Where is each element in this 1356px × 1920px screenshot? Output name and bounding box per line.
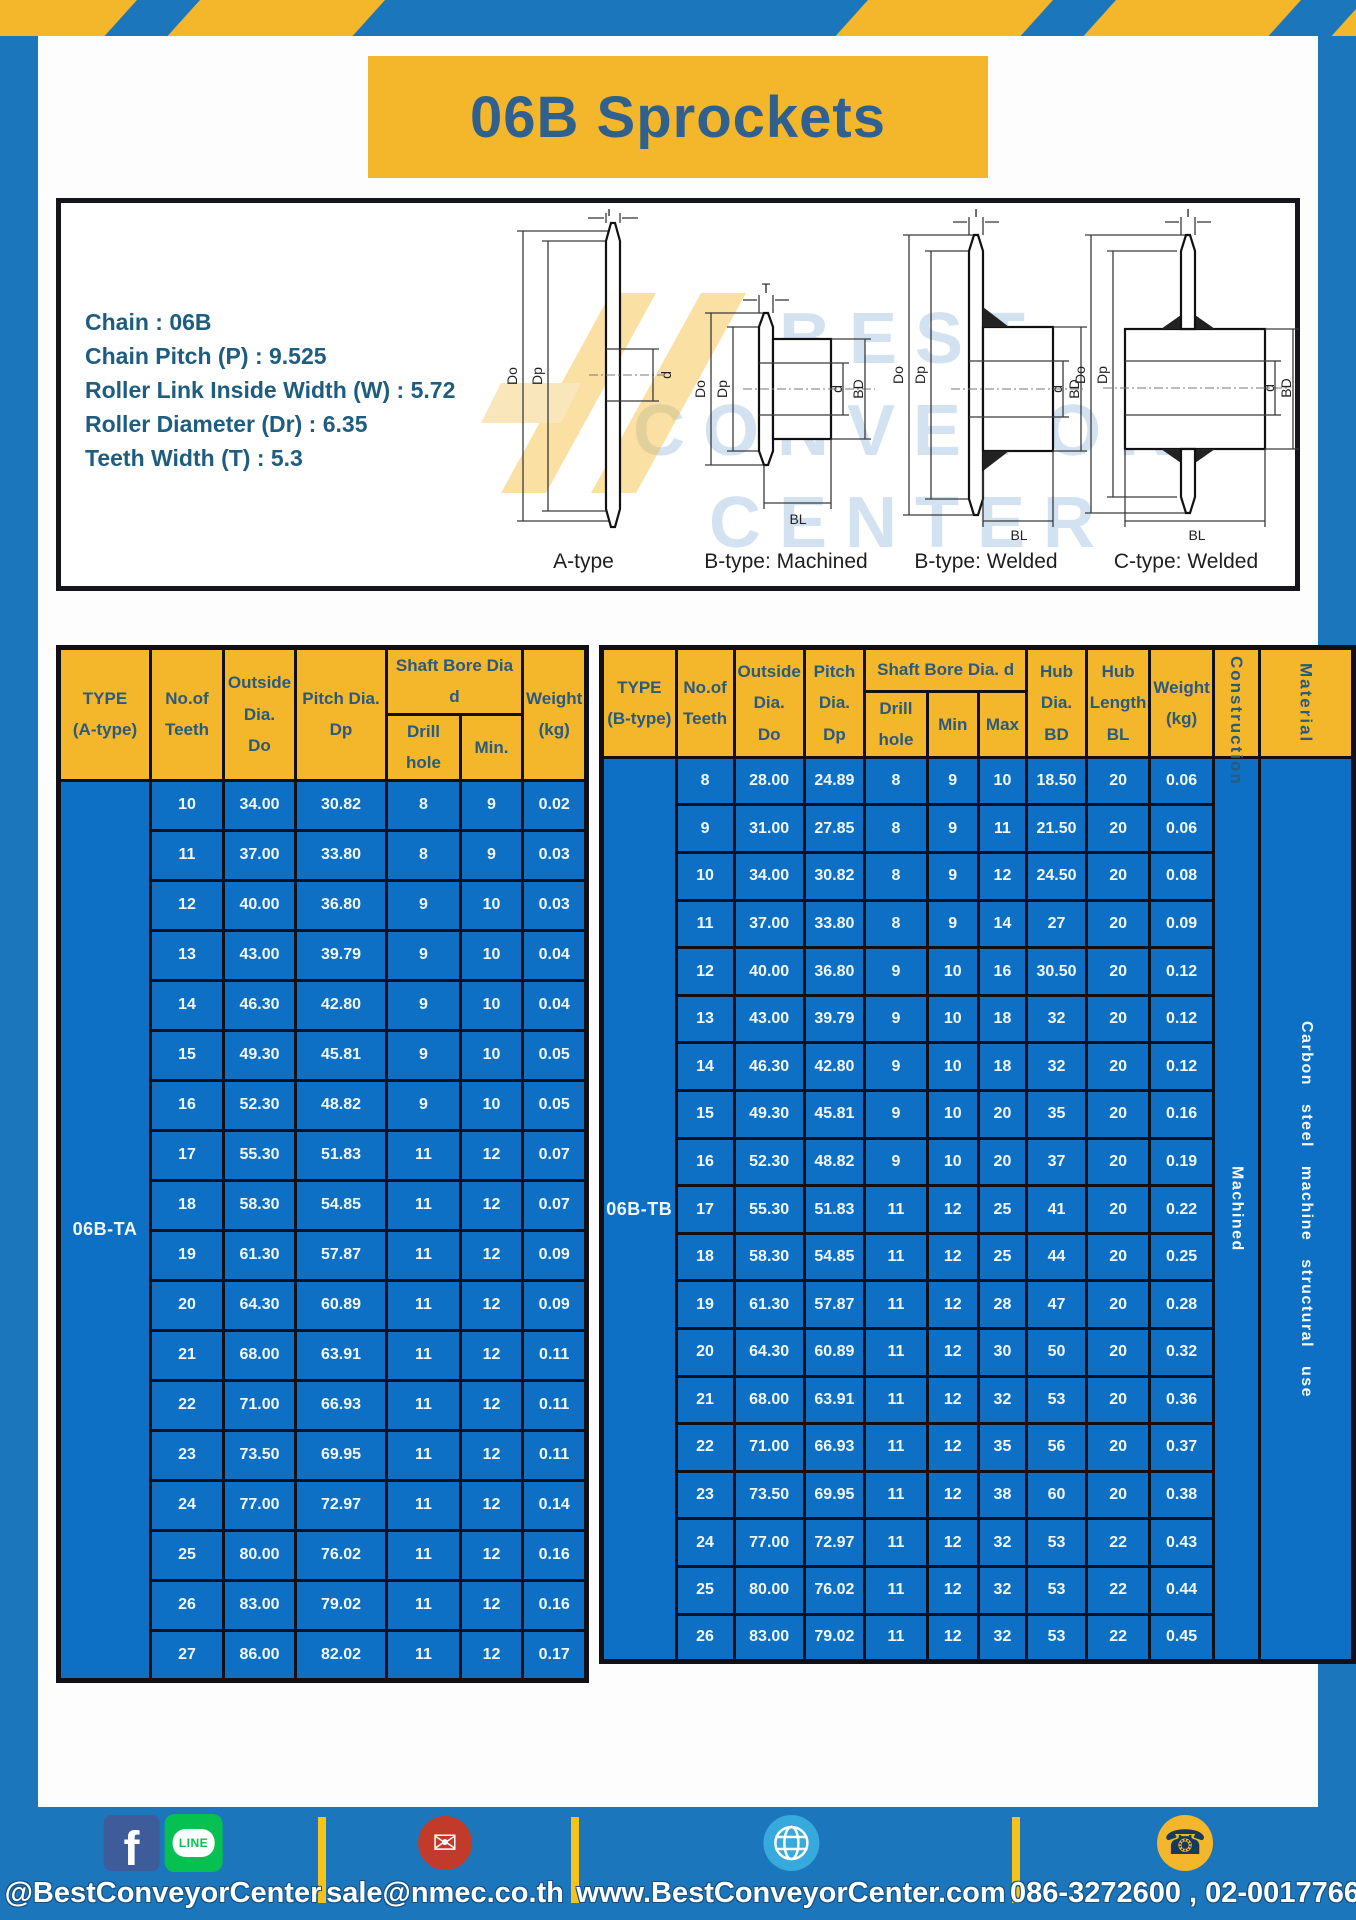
dim-label-bl: BL xyxy=(1010,527,1027,543)
table-cell: 52.30 xyxy=(734,1138,804,1186)
table-cell: 12 xyxy=(676,948,734,996)
table-cell: 20 xyxy=(1086,1281,1150,1329)
table-cell: 30.82 xyxy=(804,853,864,901)
globe-icon xyxy=(763,1815,819,1871)
dim-label-do: Do xyxy=(1073,366,1088,384)
email-icon: ✉ xyxy=(418,1816,472,1870)
table-cell: 71.00 xyxy=(734,1424,804,1472)
dim-label-bd: BD xyxy=(850,379,866,398)
table-cell: 53 xyxy=(1027,1566,1086,1614)
table-cell: 51.83 xyxy=(296,1130,387,1180)
table-cell: 9 xyxy=(461,830,523,880)
stripe-decoration xyxy=(0,0,137,36)
table-cell: 20 xyxy=(1086,1471,1150,1519)
dim-label-do: Do xyxy=(504,367,520,385)
table-cell: 57.87 xyxy=(296,1230,387,1280)
table-cell: 9 xyxy=(865,948,928,996)
table-cell: 0.06 xyxy=(1150,757,1213,805)
table-cell: 20 xyxy=(1086,1424,1150,1472)
table-cell: 11 xyxy=(865,1329,928,1377)
table-cell: 10 xyxy=(461,880,523,930)
table-cell: 0.04 xyxy=(523,930,587,980)
table-cell: 0.22 xyxy=(1150,1186,1213,1234)
table-cell: 0.12 xyxy=(1150,995,1213,1043)
table-cell: 0.25 xyxy=(1150,1233,1213,1281)
table-cell: 32 xyxy=(1027,1043,1086,1091)
dim-label-dp: Dp xyxy=(1094,366,1110,384)
table-cell: 20 xyxy=(978,1138,1027,1186)
table-cell: 8 xyxy=(865,900,928,948)
table-cell: 22 xyxy=(151,1380,224,1430)
table-cell: 30 xyxy=(978,1329,1027,1377)
table-cell: 24.50 xyxy=(1027,853,1086,901)
table-cell: 10 xyxy=(461,1080,523,1130)
table-cell: 12 xyxy=(927,1329,978,1377)
table-cell: 11 xyxy=(865,1614,928,1662)
table-cell: 12 xyxy=(927,1424,978,1472)
dim-label-do: Do xyxy=(890,366,906,384)
table-cell: 10 xyxy=(461,1030,523,1080)
col-header-construction: Construction xyxy=(1213,648,1259,758)
table-cell: 20 xyxy=(1086,1091,1150,1139)
table-cell: 20 xyxy=(151,1280,224,1330)
table-cell: 13 xyxy=(151,930,224,980)
table-cell: 32 xyxy=(978,1566,1027,1614)
table-cell: 25 xyxy=(676,1566,734,1614)
table-cell: 28 xyxy=(978,1281,1027,1329)
website-url-text: www.BestConveyorCenter.com xyxy=(576,1877,1005,1910)
table-cell: 27.85 xyxy=(804,805,864,853)
spec-line: Chain : 06B xyxy=(85,305,455,339)
table-cell: 0.16 xyxy=(523,1530,587,1580)
col-header-max: Max xyxy=(978,692,1027,758)
table-cell: 30.82 xyxy=(296,780,387,830)
table-cell: 39.79 xyxy=(296,930,387,980)
col-header-pitch-dia: Pitch Dia. Dp xyxy=(296,648,387,781)
table-cell: 38 xyxy=(978,1471,1027,1519)
table-cell: 11 xyxy=(865,1281,928,1329)
table-cell: 12 xyxy=(461,1180,523,1230)
table-cell: 0.07 xyxy=(523,1130,587,1180)
table-cell: 11 xyxy=(151,830,224,880)
table-cell: 42.80 xyxy=(296,980,387,1030)
table-cell: 61.30 xyxy=(734,1281,804,1329)
type-label-cell: 06B-TA xyxy=(59,780,151,1680)
table-cell: 0.09 xyxy=(1150,900,1213,948)
dim-label-bd: BD xyxy=(1278,378,1294,397)
table-cell: 26 xyxy=(151,1580,224,1630)
table-cell: 10 xyxy=(676,853,734,901)
table-cell: 10 xyxy=(461,930,523,980)
stripe-decoration xyxy=(168,0,385,36)
table-cell: 9 xyxy=(927,853,978,901)
table-cell: 27 xyxy=(1027,900,1086,948)
table-cell: 16 xyxy=(151,1080,224,1130)
table-cell: 16 xyxy=(676,1138,734,1186)
dim-label-t: T xyxy=(972,209,981,220)
table-cell: 18 xyxy=(978,995,1027,1043)
table-cell: 0.19 xyxy=(1150,1138,1213,1186)
table-cell: 32 xyxy=(1027,995,1086,1043)
table-cell: 9 xyxy=(927,805,978,853)
table-cell: 41 xyxy=(1027,1186,1086,1234)
table-cell: 33.80 xyxy=(804,900,864,948)
table-cell: 13 xyxy=(676,995,734,1043)
table-cell: 0.12 xyxy=(1150,948,1213,996)
table-cell: 10 xyxy=(461,980,523,1030)
table-cell: 12 xyxy=(461,1330,523,1380)
table-cell: 12 xyxy=(461,1530,523,1580)
table-cell: 43.00 xyxy=(734,995,804,1043)
table-cell: 19 xyxy=(676,1281,734,1329)
table-cell: 24 xyxy=(151,1480,224,1530)
footer-social-section: f LINE @BestConveyorCenter xyxy=(5,1813,322,1910)
table-cell: 0.37 xyxy=(1150,1424,1213,1472)
dim-label-dp: Dp xyxy=(529,367,545,385)
table-cell: 0.44 xyxy=(1150,1566,1213,1614)
table-cell: 66.93 xyxy=(804,1424,864,1472)
col-header-type: TYPE (B-type) xyxy=(602,648,677,758)
phone-icon: ☎ xyxy=(1157,1815,1213,1871)
table-cell: 23 xyxy=(151,1430,224,1480)
table-cell: 43.00 xyxy=(224,930,296,980)
table-cell: 11 xyxy=(676,900,734,948)
table-cell: 40.00 xyxy=(734,948,804,996)
table-cell: 23 xyxy=(676,1471,734,1519)
table-cell: 12 xyxy=(927,1233,978,1281)
table-cell: 11 xyxy=(865,1566,928,1614)
table-cell: 0.09 xyxy=(523,1230,587,1280)
stripe-decoration xyxy=(836,0,1053,36)
table-cell: 0.05 xyxy=(523,1080,587,1130)
table-cell: 22 xyxy=(1086,1566,1150,1614)
diagram-panel: BEST CONVEYOR CENTER Chain : 06B Chain P… xyxy=(56,198,1300,591)
diagram-caption: A-type xyxy=(491,550,676,574)
table-cell: 39.79 xyxy=(804,995,864,1043)
footer-website-section: www.BestConveyorCenter.com xyxy=(576,1813,1005,1910)
dim-label-dp: Dp xyxy=(714,380,730,398)
table-cell: 12 xyxy=(461,1430,523,1480)
table-cell: 68.00 xyxy=(734,1376,804,1424)
table-cell: 20 xyxy=(676,1329,734,1377)
table-cell: 20 xyxy=(1086,1376,1150,1424)
table-cell: 32 xyxy=(978,1519,1027,1567)
table-cell: 10 xyxy=(927,948,978,996)
table-cell: 12 xyxy=(461,1230,523,1280)
table-cell: 24 xyxy=(676,1519,734,1567)
table-cell: 20 xyxy=(1086,1138,1150,1186)
table-cell: 60 xyxy=(1027,1471,1086,1519)
table-cell: 0.16 xyxy=(1150,1091,1213,1139)
table-cell: 12 xyxy=(927,1186,978,1234)
table-cell: 37 xyxy=(1027,1138,1086,1186)
table-cell: 73.50 xyxy=(734,1471,804,1519)
table-cell: 14 xyxy=(978,900,1027,948)
table-cell: 28.00 xyxy=(734,757,804,805)
table-cell: 55.30 xyxy=(224,1130,296,1180)
table-cell: 72.97 xyxy=(296,1480,387,1530)
table-cell: 0.11 xyxy=(523,1430,587,1480)
table-cell: 12 xyxy=(927,1376,978,1424)
table-cell: 11 xyxy=(387,1180,461,1230)
line-glyph: LINE xyxy=(179,1836,208,1850)
spec-line: Roller Diameter (Dr) : 6.35 xyxy=(85,407,455,441)
table-cell: 11 xyxy=(387,1430,461,1480)
table-cell: 20 xyxy=(1086,1329,1150,1377)
table-cell: 18 xyxy=(978,1043,1027,1091)
sprocket-diagram-b-welded: T d BD Do Dp BL xyxy=(883,209,1093,544)
table-cell: 45.81 xyxy=(296,1030,387,1080)
table-cell: 11 xyxy=(387,1480,461,1530)
table-cell: 11 xyxy=(978,805,1027,853)
table-cell: 32 xyxy=(978,1614,1027,1662)
table-cell: 11 xyxy=(387,1580,461,1630)
table-cell: 20 xyxy=(1086,853,1150,901)
table-cell: 61.30 xyxy=(224,1230,296,1280)
col-header-material: Material xyxy=(1259,648,1353,758)
table-cell: 0.07 xyxy=(523,1180,587,1230)
table-cell: 20 xyxy=(1086,1186,1150,1234)
table-cell: 9 xyxy=(461,780,523,830)
table-cell: 79.02 xyxy=(804,1614,864,1662)
table-cell: 0.16 xyxy=(523,1580,587,1630)
table-cell: 0.38 xyxy=(1150,1471,1213,1519)
footer-phone-section: ☎ 086-3272600 , 02-0017766 xyxy=(1010,1813,1356,1910)
table-cell: 11 xyxy=(387,1130,461,1180)
table-cell: 25 xyxy=(151,1530,224,1580)
table-cell: 56 xyxy=(1027,1424,1086,1472)
table-cell: 68.00 xyxy=(224,1330,296,1380)
table-cell: 32 xyxy=(978,1376,1027,1424)
table-cell: 51.83 xyxy=(804,1186,864,1234)
table-cell: 22 xyxy=(676,1424,734,1472)
dim-label-t: T xyxy=(1184,209,1193,220)
table-cell: 12 xyxy=(461,1580,523,1630)
table-cell: 10 xyxy=(927,995,978,1043)
phone-glyph: ☎ xyxy=(1164,1826,1206,1860)
table-cell: 35 xyxy=(978,1424,1027,1472)
table-cell: 11 xyxy=(387,1330,461,1380)
table-cell: 10 xyxy=(927,1091,978,1139)
col-header-teeth: No.of Teeth xyxy=(676,648,734,758)
table-cell: 17 xyxy=(151,1130,224,1180)
table-cell: 8 xyxy=(676,757,734,805)
table-cell: 8 xyxy=(387,830,461,880)
table-cell: 15 xyxy=(151,1030,224,1080)
table-cell: 21 xyxy=(151,1330,224,1380)
table-cell: 21 xyxy=(676,1376,734,1424)
b-type-table: TYPE (B-type) No.of Teeth Outside Dia. D… xyxy=(599,645,1356,1664)
table-cell: 0.04 xyxy=(523,980,587,1030)
col-header-weight: Weight (kg) xyxy=(523,648,587,781)
table-cell: 42.80 xyxy=(804,1043,864,1091)
table-cell: 20 xyxy=(978,1091,1027,1139)
table-cell: 8 xyxy=(865,853,928,901)
phone-numbers-text: 086-3272600 , 02-0017766 xyxy=(1010,1877,1356,1910)
col-header-shaft-bore-group: Shaft Bore Dia d xyxy=(387,648,523,715)
table-cell: 12 xyxy=(978,853,1027,901)
page-title: 06B Sprockets xyxy=(470,84,886,151)
col-header-outside-dia: Outside Dia. Do xyxy=(224,648,296,781)
table-cell: 25 xyxy=(978,1186,1027,1234)
table-cell: 0.08 xyxy=(1150,853,1213,901)
table-cell: 9 xyxy=(865,995,928,1043)
material-value-cell: Carbon steel machine structural use xyxy=(1259,757,1353,1661)
table-cell: 12 xyxy=(461,1630,523,1680)
table-cell: 73.50 xyxy=(224,1430,296,1480)
table-cell: 18.50 xyxy=(1027,757,1086,805)
table-cell: 21.50 xyxy=(1027,805,1086,853)
table-cell: 46.30 xyxy=(224,980,296,1030)
stripe-decoration xyxy=(1084,0,1301,36)
table-cell: 12 xyxy=(461,1130,523,1180)
table-cell: 20 xyxy=(1086,995,1150,1043)
table-cell: 12 xyxy=(151,880,224,930)
table-cell: 77.00 xyxy=(734,1519,804,1567)
table-cell: 64.30 xyxy=(734,1329,804,1377)
table-cell: 22 xyxy=(1086,1614,1150,1662)
table-cell: 20 xyxy=(1086,948,1150,996)
table-cell: 10 xyxy=(927,1138,978,1186)
table-cell: 69.95 xyxy=(296,1430,387,1480)
dim-label-t: T xyxy=(762,280,771,296)
spec-line: Teeth Width (T) : 5.3 xyxy=(85,441,455,475)
table-cell: 0.09 xyxy=(523,1280,587,1330)
table-cell: 76.02 xyxy=(804,1566,864,1614)
table-cell: 0.36 xyxy=(1150,1376,1213,1424)
table-cell: 26 xyxy=(676,1614,734,1662)
table-cell: 80.00 xyxy=(734,1566,804,1614)
table-cell: 12 xyxy=(927,1614,978,1662)
table-cell: 69.95 xyxy=(804,1471,864,1519)
table-cell: 20 xyxy=(1086,900,1150,948)
table-cell: 0.43 xyxy=(1150,1519,1213,1567)
table-cell: 9 xyxy=(927,900,978,948)
diagram-caption: C-type: Welded xyxy=(1061,550,1311,574)
table-cell: 71.00 xyxy=(224,1380,296,1430)
table-cell: 86.00 xyxy=(224,1630,296,1680)
table-cell: 14 xyxy=(676,1043,734,1091)
table-cell: 16 xyxy=(978,948,1027,996)
dim-label-d: d xyxy=(658,371,674,379)
table-cell: 11 xyxy=(387,1530,461,1580)
a-type-table: TYPE (A-type) No.of Teeth Outside Dia. D… xyxy=(56,645,589,1683)
table-cell: 9 xyxy=(927,757,978,805)
dim-label-d: d xyxy=(1049,385,1065,393)
table-cell: 49.30 xyxy=(734,1091,804,1139)
col-header-hub-length: Hub Length BL xyxy=(1086,648,1150,758)
table-cell: 50 xyxy=(1027,1329,1086,1377)
table-cell: 9 xyxy=(865,1043,928,1091)
table-cell: 76.02 xyxy=(296,1530,387,1580)
table-cell: 44 xyxy=(1027,1233,1086,1281)
table-cell: 47 xyxy=(1027,1281,1086,1329)
table-cell: 19 xyxy=(151,1230,224,1280)
table-cell: 9 xyxy=(387,1080,461,1130)
table-cell: 77.00 xyxy=(224,1480,296,1530)
facebook-icon: f xyxy=(104,1815,160,1871)
table-cell: 9 xyxy=(865,1091,928,1139)
table-cell: 11 xyxy=(865,1424,928,1472)
table-cell: 10 xyxy=(927,1043,978,1091)
table-cell: 12 xyxy=(927,1281,978,1329)
title-banner: 06B Sprockets xyxy=(368,56,988,178)
col-header-min: Min. xyxy=(461,714,523,780)
table-cell: 0.06 xyxy=(1150,805,1213,853)
table-cell: 8 xyxy=(387,780,461,830)
table-cell: 31.00 xyxy=(734,805,804,853)
table-cell: 9 xyxy=(387,1030,461,1080)
table-cell: 53 xyxy=(1027,1376,1086,1424)
table-cell: 64.30 xyxy=(224,1280,296,1330)
table-cell: 48.82 xyxy=(296,1080,387,1130)
table-cell: 37.00 xyxy=(224,830,296,880)
table-cell: 34.00 xyxy=(734,853,804,901)
table-cell: 27 xyxy=(151,1630,224,1680)
table-cell: 20 xyxy=(1086,1233,1150,1281)
table-cell: 53 xyxy=(1027,1519,1086,1567)
table-cell: 48.82 xyxy=(804,1138,864,1186)
table-cell: 0.05 xyxy=(523,1030,587,1080)
col-header-outside-dia: Outside Dia. Do xyxy=(734,648,804,758)
table-cell: 0.12 xyxy=(1150,1043,1213,1091)
table-cell: 0.14 xyxy=(523,1480,587,1530)
dim-label-dp: Dp xyxy=(912,366,928,384)
social-handle-text: @BestConveyorCenter xyxy=(5,1877,322,1910)
table-cell: 0.03 xyxy=(523,830,587,880)
table-cell: 0.03 xyxy=(523,880,587,930)
table-cell: 33.80 xyxy=(296,830,387,880)
table-cell: 40.00 xyxy=(224,880,296,930)
spec-line: Chain Pitch (P) : 9.525 xyxy=(85,339,455,373)
table-cell: 58.30 xyxy=(734,1233,804,1281)
table-cell: 24.89 xyxy=(804,757,864,805)
table-cell: 34.00 xyxy=(224,780,296,830)
table-cell: 63.91 xyxy=(296,1330,387,1380)
table-cell: 10 xyxy=(978,757,1027,805)
table-row: 06B-TA1034.0030.82890.02 xyxy=(59,780,587,830)
table-cell: 12 xyxy=(461,1380,523,1430)
table-cell: 17 xyxy=(676,1186,734,1234)
col-header-weight: Weight (kg) xyxy=(1150,648,1213,758)
table-cell: 58.30 xyxy=(224,1180,296,1230)
col-header-type: TYPE (A-type) xyxy=(59,648,151,781)
table-cell: 46.30 xyxy=(734,1043,804,1091)
table-cell: 11 xyxy=(865,1519,928,1567)
col-header-hub-dia: Hub Dia. BD xyxy=(1027,648,1086,758)
table-cell: 0.11 xyxy=(523,1330,587,1380)
table-cell: 8 xyxy=(865,805,928,853)
dim-label-d: d xyxy=(829,385,845,393)
sprocket-diagram-c-welded: T d BD Do Dp BL xyxy=(1073,209,1303,544)
table-cell: 15 xyxy=(676,1091,734,1139)
table-cell: 11 xyxy=(865,1471,928,1519)
table-cell: 12 xyxy=(927,1471,978,1519)
table-cell: 18 xyxy=(676,1233,734,1281)
footer-contact-bar: f LINE @BestConveyorCenter ✉ sale@nmec.c… xyxy=(0,1807,1356,1920)
dim-label-t: T xyxy=(605,209,614,219)
table-cell: 0.17 xyxy=(523,1630,587,1680)
dim-label-d: d xyxy=(1261,384,1277,392)
table-cell: 63.91 xyxy=(804,1376,864,1424)
table-cell: 54.85 xyxy=(296,1180,387,1230)
table-cell: 72.97 xyxy=(804,1519,864,1567)
spec-list: Chain : 06B Chain Pitch (P) : 9.525 Roll… xyxy=(85,305,455,475)
table-cell: 83.00 xyxy=(224,1580,296,1630)
table-cell: 8 xyxy=(865,757,928,805)
table-cell: 9 xyxy=(387,930,461,980)
email-address-text: sale@nmec.co.th xyxy=(326,1877,564,1910)
